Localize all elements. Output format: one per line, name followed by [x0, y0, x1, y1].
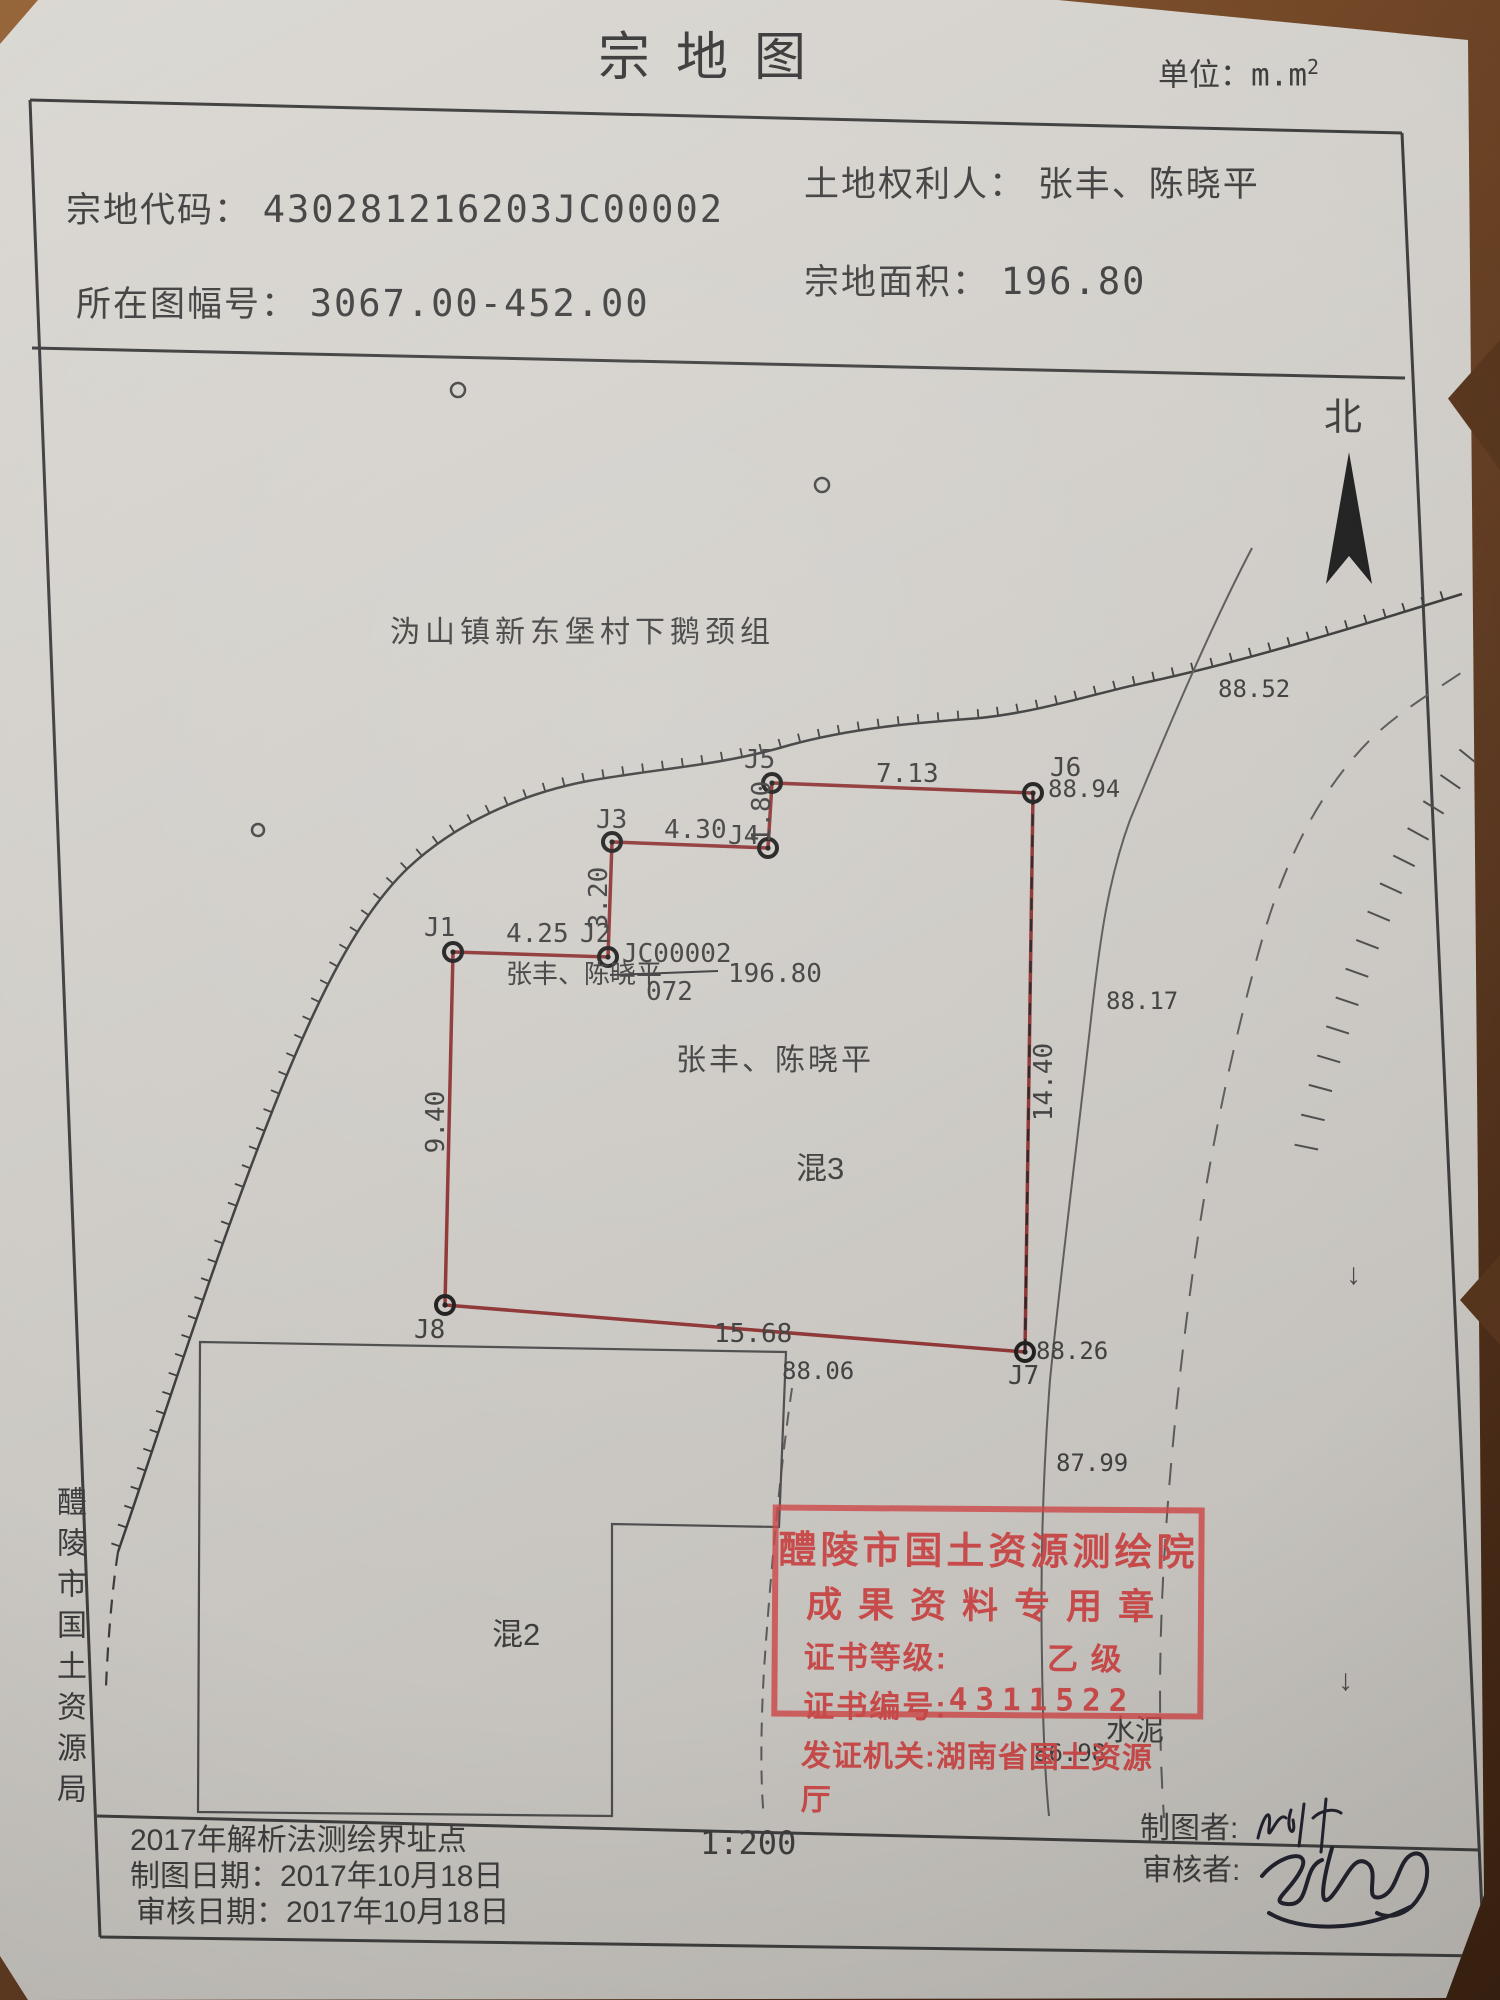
holder-center-label: 张丰、陈晓平 [676, 1044, 874, 1077]
annotation-code: JC00002 [622, 940, 732, 969]
unit-note: 单位：m.m2 [1158, 56, 1319, 92]
elevation-88-94: 88.94 [1048, 776, 1120, 802]
parcel-area-value: 196.80 [1001, 260, 1147, 303]
unit-label: 单位： [1158, 57, 1251, 92]
flow-arrow-icon: ↓ [1338, 1664, 1353, 1698]
certification-stamp: 醴陵市国土资源测绘院 成果资料专用章 证书等级: 乙 级 证书编号: 43115… [771, 1504, 1204, 1719]
review-date-label: 审核日期： [136, 1896, 286, 1929]
north-arrow-icon [1326, 452, 1372, 584]
review-date-value: 2017年10月18日 [286, 1896, 509, 1929]
frame-lines [30, 100, 1484, 1956]
edge-length-j4j5: 1.80 [749, 780, 775, 844]
point-label-j5: J5 [744, 746, 775, 775]
stamp-cert-label: 证书编号: [803, 1681, 948, 1727]
draw-date-row: 制图日期：2017年10月18日 [130, 1860, 503, 1893]
building-outline [198, 1342, 786, 1816]
paper-sheet: 宗地图 单位：m.m2 宗地代码： 430281216203JC00002 土地… [0, 0, 1500, 2000]
parcel-area-row: 宗地面积： 196.80 [804, 262, 1146, 303]
rights-holder-label: 土地权利人： [804, 165, 1026, 204]
sheet-no-label: 所在图幅号： [76, 285, 298, 324]
edge-length-j5j6: 7.13 [876, 760, 939, 789]
point-label-j8: J8 [414, 1316, 445, 1345]
elevation-87-99: 87.99 [1056, 1450, 1128, 1476]
drafter-label: 制图者: [1140, 1812, 1238, 1845]
elevation-88-06: 88.06 [782, 1358, 854, 1384]
reviewer-label: 审核者: [1142, 1854, 1240, 1887]
utility-point-symbols [252, 383, 829, 836]
edge-length-j2j3: 3.20 [586, 866, 612, 930]
parcel-code-label: 宗地代码： [66, 191, 251, 230]
point-label-j3: J3 [596, 806, 627, 835]
drafter-signature [1258, 1799, 1341, 1852]
edge-length-j8j1: 9.40 [423, 1090, 449, 1154]
point-label-j7: J7 [1008, 1362, 1039, 1391]
stamp-cert-number: 4311522 [949, 1682, 1136, 1728]
rights-holder-row: 土地权利人： 张丰、陈晓平 [804, 166, 1260, 205]
sheet-no-row: 所在图幅号： 3067.00-452.00 [76, 284, 650, 325]
stamp-purpose: 成果资料专用章 [778, 1576, 1198, 1631]
photographed-cadastral-document: { "page": { "title": "宗地图", "unit_label"… [0, 0, 1500, 2000]
edge-length-j6j7: 14.40 [1031, 1044, 1057, 1120]
unit-value: m.m [1251, 57, 1307, 93]
agency-vertical-text: 醴陵市国土资源局 [50, 1486, 90, 1814]
parcel-area-label: 宗地面积： [804, 263, 989, 302]
map-scale: 1:200 [700, 1826, 796, 1861]
stamp-cert-row: 证书编号: 4311522 [777, 1681, 1197, 1729]
elevation-88-26: 88.26 [1036, 1338, 1108, 1364]
unit-exponent: 2 [1307, 55, 1319, 79]
stamp-grade-row: 证书等级: 乙 级 [778, 1632, 1198, 1680]
edge-length-j8j7: 15.68 [714, 1320, 792, 1349]
point-label-j1: J1 [424, 914, 455, 943]
review-date-row: 审核日期：2017年10月18日 [136, 1896, 509, 1929]
north-label: 北 [1324, 398, 1362, 440]
stamp-issuer-row: 发证机关:湖南省国土资源厅 [777, 1731, 1198, 1822]
stamp-grade-label: 证书等级: [804, 1632, 949, 1678]
structure3-label: 混3 [796, 1152, 844, 1186]
village-label: 沩山镇新东堡村下鹅颈组 [390, 616, 775, 649]
page-title: 宗地图 [515, 30, 915, 87]
survey-method-note: 2017年解析法测绘界址点 [130, 1824, 467, 1857]
stamp-issuer-label: 发证机关: [801, 1740, 936, 1774]
draw-date-value: 2017年10月18日 [280, 1860, 503, 1893]
reviewer-signature [1262, 1848, 1427, 1927]
annotation-number: 072 [646, 978, 693, 1007]
edge-length-j3j4: 4.30 [664, 816, 727, 845]
draw-date-label: 制图日期： [130, 1860, 280, 1893]
parcel-code-row: 宗地代码： 430281216203JC00002 [66, 190, 724, 231]
parcel-code-value: 430281216203JC00002 [263, 188, 724, 231]
flow-arrow-icon: ↓ [1346, 1258, 1361, 1292]
stamp-agency: 醴陵市国土资源测绘院 [778, 1519, 1198, 1577]
rights-holder-value: 张丰、陈晓平 [1038, 165, 1260, 204]
elevation-88-17: 88.17 [1106, 988, 1178, 1014]
stamp-grade-value: 乙 级 [1047, 1633, 1124, 1679]
sheet-no-value: 3067.00-452.00 [310, 282, 650, 325]
road-dashed-line [1160, 652, 1492, 1818]
structure2-label: 混2 [492, 1618, 540, 1652]
edge-length-j1j2: 4.25 [506, 920, 569, 949]
annotation-area: 196.80 [728, 960, 822, 989]
elevation-88-52: 88.52 [1218, 676, 1290, 702]
